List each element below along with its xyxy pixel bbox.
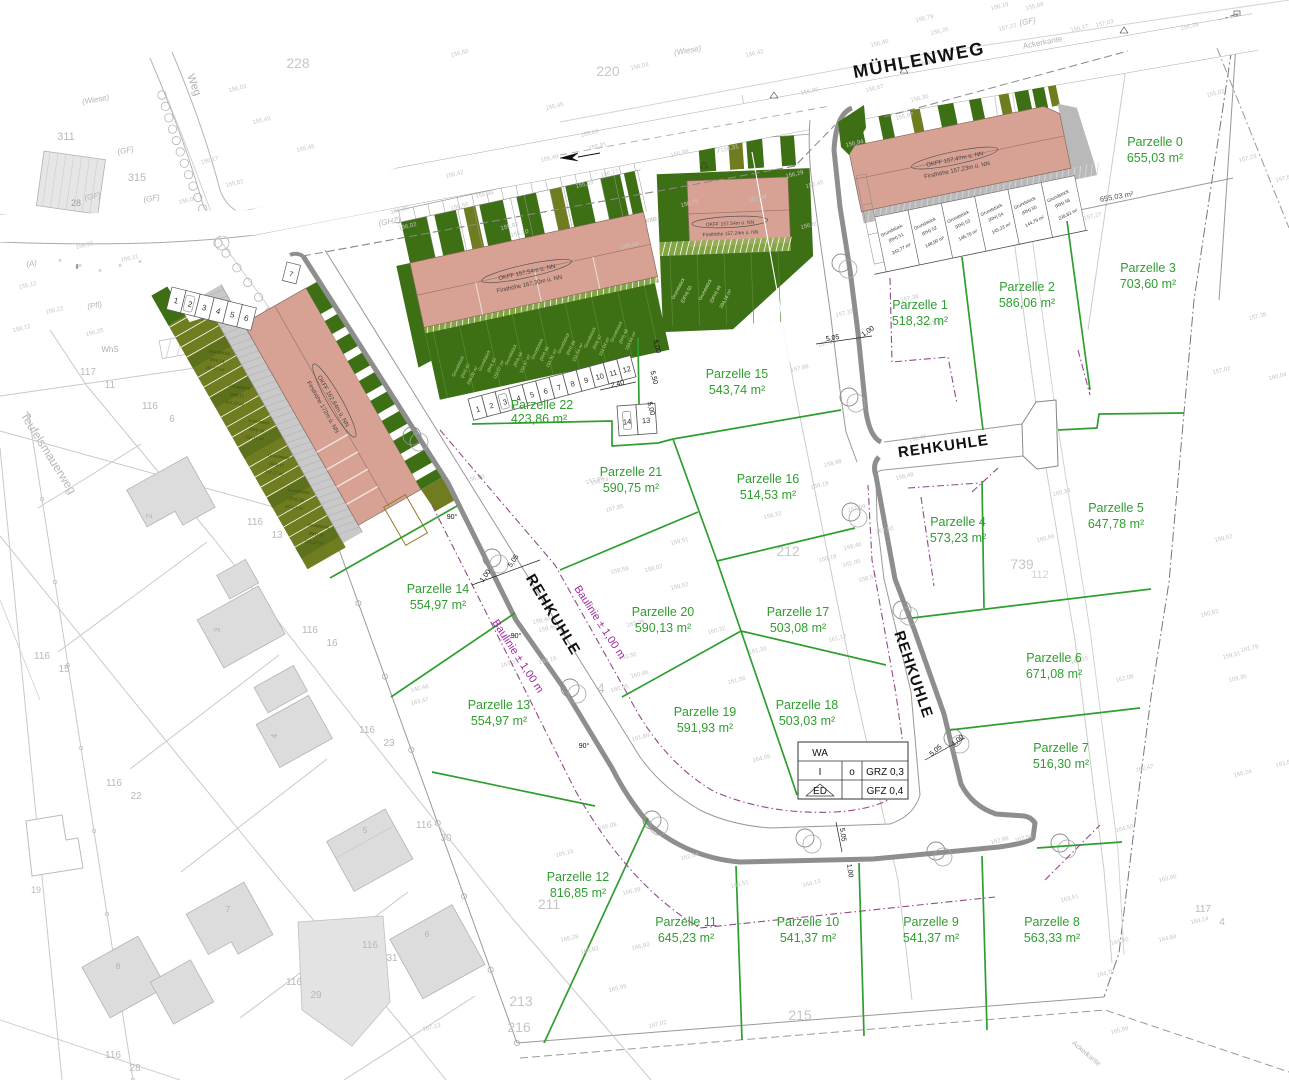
svg-text:423,86 m²: 423,86 m² (511, 412, 567, 426)
svg-text:90°: 90° (579, 742, 590, 750)
svg-text:116: 116 (106, 778, 122, 789)
svg-text:563,33 m²: 563,33 m² (1024, 931, 1080, 945)
svg-text:31: 31 (386, 953, 398, 964)
svg-text:503,08 m²: 503,08 m² (770, 621, 826, 635)
svg-text:90°: 90° (511, 632, 522, 640)
svg-text:518,32 m²: 518,32 m² (892, 314, 948, 328)
svg-text:15: 15 (58, 664, 70, 675)
svg-text:Parzelle 9: Parzelle 9 (903, 915, 959, 929)
svg-text:703,60 m²: 703,60 m² (1120, 277, 1176, 291)
svg-text:590,75 m²: 590,75 m² (603, 481, 659, 495)
svg-text:16: 16 (326, 638, 338, 649)
svg-text:Parzelle 0: Parzelle 0 (1127, 135, 1183, 149)
svg-text:Parzelle 18: Parzelle 18 (776, 698, 839, 712)
svg-text:116: 116 (286, 977, 302, 988)
svg-text:Parzelle 7: Parzelle 7 (1033, 741, 1089, 755)
svg-text:816,85 m²: 816,85 m² (550, 886, 606, 900)
svg-text:116: 116 (416, 820, 432, 831)
svg-text:541,37 m²: 541,37 m² (780, 931, 836, 945)
svg-text:655,03 m²: 655,03 m² (1127, 151, 1183, 165)
svg-text:573,23 m²: 573,23 m² (930, 531, 986, 545)
svg-text:7: 7 (226, 905, 231, 914)
svg-text:315: 315 (128, 172, 146, 184)
svg-text:541,37 m²: 541,37 m² (903, 931, 959, 945)
svg-text:586,06 m²: 586,06 m² (999, 296, 1055, 310)
svg-text:29: 29 (310, 990, 322, 1001)
svg-text:o: o (849, 767, 855, 778)
svg-text:8: 8 (116, 962, 121, 971)
svg-text:×: × (98, 268, 102, 275)
svg-text:543,74 m²: 543,74 m² (709, 383, 765, 397)
svg-text:6: 6 (425, 930, 430, 939)
svg-text:220: 220 (596, 63, 620, 79)
svg-text:28: 28 (129, 1063, 141, 1074)
svg-text:Parzelle 22: Parzelle 22 (511, 398, 574, 412)
svg-text:90°: 90° (447, 513, 458, 521)
svg-text:Parzelle 4: Parzelle 4 (930, 515, 986, 529)
svg-text:591,93 m²: 591,93 m² (677, 721, 733, 735)
svg-text:4: 4 (270, 733, 279, 738)
svg-text:GRZ 0,3: GRZ 0,3 (866, 767, 904, 778)
svg-text:311: 311 (57, 131, 75, 143)
svg-text:Parzelle 16: Parzelle 16 (737, 472, 800, 486)
svg-text:I: I (819, 767, 822, 778)
svg-text:Parzelle 6: Parzelle 6 (1026, 651, 1082, 665)
svg-text:516,30 m²: 516,30 m² (1033, 757, 1089, 771)
svg-text:116: 116 (247, 517, 263, 528)
svg-text:14: 14 (623, 417, 632, 427)
svg-text:117: 117 (80, 367, 96, 378)
svg-text:554,97 m²: 554,97 m² (410, 598, 466, 612)
svg-text:GFZ 0,4: GFZ 0,4 (867, 786, 904, 797)
svg-text:503,03 m²: 503,03 m² (779, 714, 835, 728)
svg-text:11: 11 (105, 380, 116, 391)
svg-text:645,23 m²: 645,23 m² (658, 931, 714, 945)
svg-text:×: × (138, 259, 142, 266)
svg-text:Parzelle 14: Parzelle 14 (407, 582, 470, 596)
svg-text:Parzelle 12: Parzelle 12 (547, 870, 610, 884)
svg-text:Parzelle 1: Parzelle 1 (892, 298, 948, 312)
svg-text:Parzelle 17: Parzelle 17 (767, 605, 830, 619)
svg-text:228: 228 (286, 55, 310, 71)
svg-text:116: 116 (105, 1050, 121, 1061)
svg-text:671,08 m²: 671,08 m² (1026, 667, 1082, 681)
svg-text:Parzelle 19: Parzelle 19 (674, 705, 737, 719)
svg-text:116: 116 (302, 625, 318, 636)
svg-text:(A): (A) (26, 258, 38, 269)
svg-text:Parzelle 15: Parzelle 15 (706, 367, 769, 381)
svg-text:28: 28 (71, 198, 81, 208)
svg-text:Parzelle 21: Parzelle 21 (600, 465, 663, 479)
svg-text:3: 3 (213, 627, 222, 632)
svg-text:Parzelle 13: Parzelle 13 (468, 698, 531, 712)
svg-text:Parzelle 2: Parzelle 2 (999, 280, 1055, 294)
svg-text:6: 6 (169, 414, 175, 425)
svg-text:×: × (58, 258, 62, 265)
svg-text:23: 23 (383, 738, 395, 749)
svg-text:112: 112 (1031, 569, 1049, 581)
svg-text:590,13 m²: 590,13 m² (635, 621, 691, 635)
svg-text:30: 30 (440, 833, 452, 844)
svg-text:Parzelle 11: Parzelle 11 (655, 915, 717, 929)
svg-text:13: 13 (642, 416, 651, 426)
svg-text:Parzelle 8: Parzelle 8 (1024, 915, 1080, 929)
svg-text:Parzelle 10: Parzelle 10 (777, 915, 840, 929)
svg-text:514,53 m²: 514,53 m² (740, 488, 796, 502)
svg-text:Parzelle 3: Parzelle 3 (1120, 261, 1176, 275)
svg-text:13: 13 (271, 530, 283, 541)
svg-text:215: 215 (788, 1007, 812, 1023)
svg-text:116: 116 (142, 401, 158, 412)
svg-text:19: 19 (31, 885, 41, 895)
svg-text:116: 116 (34, 651, 50, 662)
svg-text:22: 22 (130, 791, 142, 802)
svg-text:2: 2 (145, 513, 154, 518)
svg-text:WhS: WhS (101, 345, 118, 354)
svg-text:554,97 m²: 554,97 m² (471, 714, 527, 728)
svg-text:117: 117 (1195, 904, 1211, 915)
svg-text:213: 213 (509, 993, 533, 1009)
svg-text:116: 116 (362, 940, 378, 951)
svg-text:647,78 m²: 647,78 m² (1088, 517, 1144, 531)
svg-text:5: 5 (363, 826, 368, 835)
svg-text:▮: ▮ (75, 264, 78, 270)
svg-text:116: 116 (359, 725, 375, 736)
svg-text:Parzelle 5: Parzelle 5 (1088, 501, 1144, 515)
svg-text:Parzelle 20: Parzelle 20 (632, 605, 695, 619)
svg-text:WA: WA (812, 748, 828, 759)
svg-text:4: 4 (1219, 917, 1225, 928)
svg-text:216: 216 (507, 1019, 531, 1035)
